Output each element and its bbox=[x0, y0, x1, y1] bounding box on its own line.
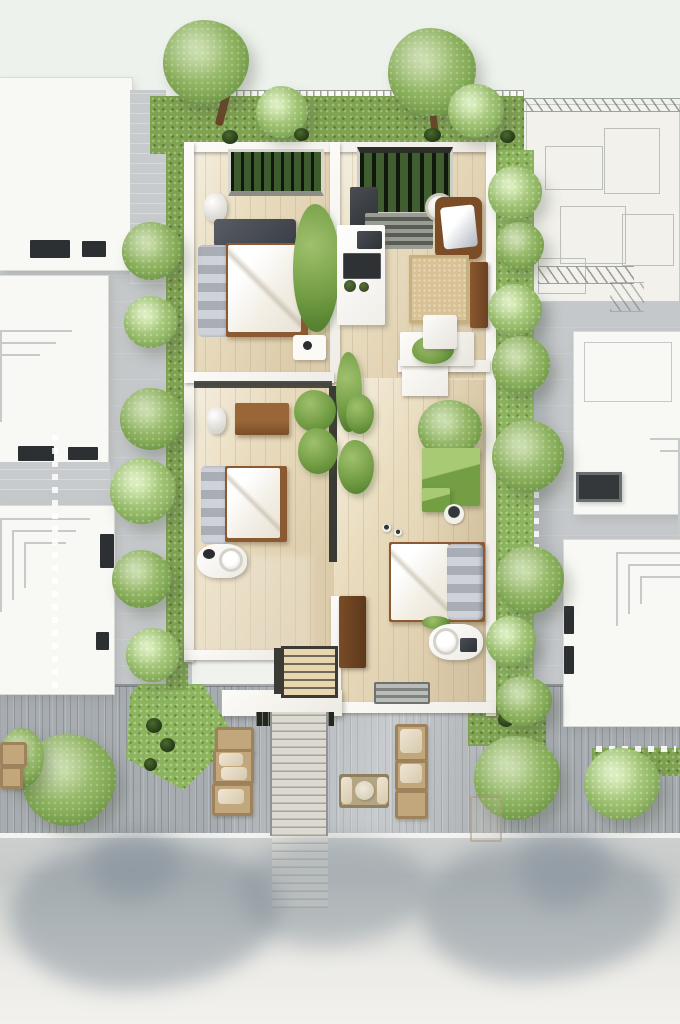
paper-roll-lamp bbox=[207, 407, 226, 434]
roof-step-detail bbox=[640, 576, 680, 604]
shrub bbox=[160, 738, 175, 752]
coffee-set bbox=[343, 253, 381, 279]
lot-paving-line bbox=[560, 206, 626, 264]
window bbox=[564, 606, 574, 634]
shrub bbox=[146, 718, 162, 733]
topiary-ball bbox=[294, 390, 336, 432]
window bbox=[100, 534, 114, 568]
wall-bottom-left bbox=[184, 650, 284, 660]
roof-border-line bbox=[584, 342, 672, 402]
window bbox=[82, 241, 106, 257]
console-table bbox=[470, 262, 488, 328]
cooktop bbox=[357, 231, 382, 249]
wall-west bbox=[184, 142, 194, 662]
vase bbox=[444, 504, 464, 524]
cistern-panel bbox=[460, 638, 477, 652]
slat-bench-2 bbox=[374, 682, 430, 704]
bed-1 bbox=[228, 245, 301, 332]
roof-step-detail bbox=[660, 450, 680, 538]
aerial-floor-plan-scene bbox=[0, 0, 680, 1024]
dining-chair bbox=[423, 315, 457, 349]
pergola-skylight-1 bbox=[228, 149, 324, 196]
jute-rug bbox=[409, 255, 469, 323]
cup bbox=[382, 524, 391, 532]
basin bbox=[219, 548, 243, 572]
pillow-row bbox=[447, 544, 483, 620]
lot-hatch-border bbox=[522, 98, 680, 112]
roof-step-detail bbox=[0, 354, 40, 396]
cushion bbox=[221, 767, 247, 780]
hamper bbox=[204, 193, 227, 222]
sketch-chair bbox=[470, 796, 502, 842]
shrub bbox=[144, 758, 157, 771]
basin bbox=[433, 628, 459, 655]
lot-paving-line bbox=[604, 128, 660, 194]
roof-step-detail bbox=[24, 542, 66, 588]
decor-item bbox=[303, 341, 312, 350]
indoor-shrub bbox=[293, 204, 340, 332]
entry-boardwalk bbox=[270, 712, 328, 836]
cistern bbox=[203, 549, 215, 559]
roof-skylight bbox=[576, 472, 622, 502]
topiary-ball bbox=[298, 428, 338, 474]
dresser bbox=[235, 403, 289, 435]
lintel bbox=[194, 381, 332, 388]
cushion bbox=[400, 764, 422, 783]
cushion bbox=[219, 753, 243, 766]
potted-plant bbox=[344, 280, 356, 292]
lot-paving-line bbox=[622, 214, 674, 266]
shrub bbox=[222, 130, 238, 144]
staircase bbox=[281, 646, 338, 698]
lounge-chair bbox=[395, 790, 428, 819]
cushion bbox=[377, 777, 388, 804]
armchair bbox=[435, 197, 482, 259]
window bbox=[18, 446, 54, 461]
cup bbox=[394, 529, 402, 536]
window bbox=[30, 240, 70, 258]
wall-nook bbox=[402, 364, 448, 396]
fence bbox=[52, 430, 58, 688]
walkway-hatch bbox=[610, 282, 644, 312]
shrub bbox=[500, 130, 515, 143]
cushion bbox=[400, 729, 422, 753]
shrub bbox=[424, 128, 441, 142]
cushion bbox=[341, 777, 352, 804]
patio-table bbox=[355, 781, 374, 800]
window bbox=[96, 632, 109, 650]
courtyard-hedge bbox=[338, 440, 374, 494]
shrub bbox=[294, 128, 309, 141]
lot-paving-line bbox=[545, 146, 603, 190]
bed-3 bbox=[391, 544, 449, 620]
bed-2 bbox=[227, 468, 280, 538]
cushion bbox=[218, 789, 244, 804]
pillow-row bbox=[198, 245, 229, 337]
window bbox=[68, 447, 98, 460]
window bbox=[564, 646, 574, 674]
patio-chair bbox=[0, 742, 27, 767]
potted-plant bbox=[359, 282, 369, 292]
courtyard-hedge bbox=[346, 394, 374, 434]
desk bbox=[339, 596, 366, 668]
patio-chair bbox=[0, 766, 23, 789]
